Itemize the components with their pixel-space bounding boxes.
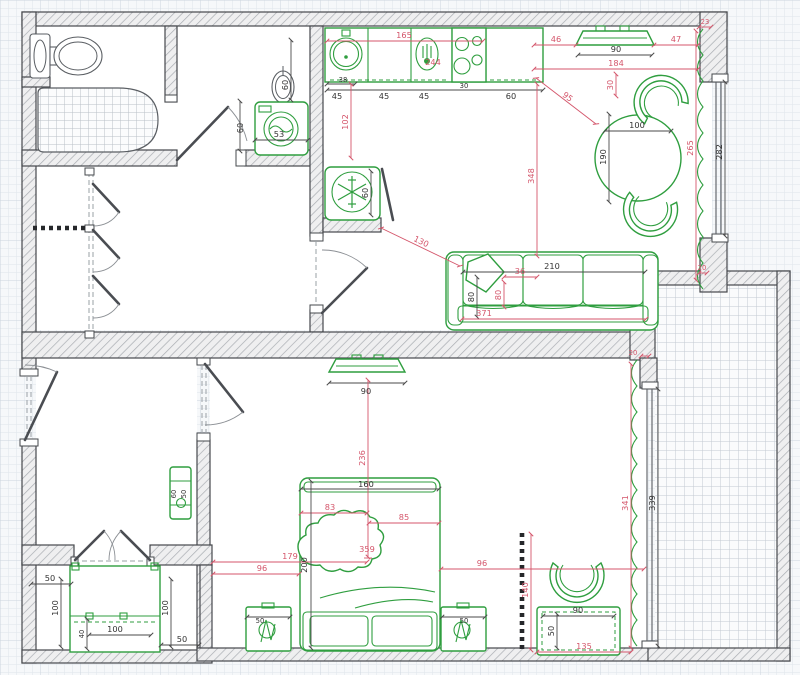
dim-window-bedroom: 339 <box>647 495 657 511</box>
dim-bedtv-width: 90 <box>361 386 371 396</box>
dim-balcony-side-right: 100 <box>160 600 170 616</box>
dim-washer-width: 53 <box>274 129 284 139</box>
dim-pillow-offset: 83 <box>325 502 335 512</box>
dim-desk-to-wall: 135 <box>576 641 592 651</box>
floor-balcony-right-tiles <box>655 285 777 648</box>
kitchen-counter[interactable] <box>325 28 543 82</box>
dim-counter-depth-gap: 102 <box>340 114 350 130</box>
dim-bath-door: 60 <box>235 123 245 133</box>
dim-tv-width: 90 <box>611 44 621 54</box>
dim-curtain-end-gap: 20 <box>698 264 707 272</box>
dim-cabinet-3: 45 <box>419 91 429 101</box>
dim-tv-to-bed: 236 <box>357 450 367 466</box>
dim-sofa-width: 210 <box>544 261 560 271</box>
dim-curtain-bedroom: 341 <box>620 495 630 511</box>
stove-icon[interactable] <box>452 28 486 82</box>
dim-dressing-width: 60 <box>170 490 178 499</box>
dim-mixer: 244 <box>425 57 441 67</box>
dim-nightstand-right: 50 <box>460 617 469 625</box>
dim-sink-offset: 38 <box>339 76 348 84</box>
dim-wardrobe-width: 100 <box>107 624 123 634</box>
dim-dressing-depth: 50 <box>180 490 188 499</box>
dim-center-offset: 359 <box>359 544 375 554</box>
dim-cabinet-1: 45 <box>332 91 342 101</box>
dim-table-zone: 190 <box>598 149 608 165</box>
dim-wall-to-center: 179 <box>282 551 298 561</box>
dim-wardrobe-depth: 40 <box>78 630 86 639</box>
dim-tv-left-gap: 46 <box>551 34 561 44</box>
dim-balcony-left-gap: 50 <box>45 573 55 583</box>
dim-bed-width: 160 <box>358 479 374 489</box>
toilet[interactable] <box>30 34 102 78</box>
dim-counter-total: 165 <box>396 30 412 40</box>
nightstand-left[interactable] <box>246 603 291 651</box>
dim-desk-depth: 50 <box>546 626 556 636</box>
dim-side-offset: 85 <box>399 512 409 522</box>
dim-bed-length: 200 <box>299 557 309 573</box>
dim-tv-right-gap: 47 <box>671 34 681 44</box>
dim-balcony-right-gap: 50 <box>177 634 187 644</box>
bathtub[interactable] <box>38 88 158 152</box>
dim-sofa-cushion: 36 <box>515 266 525 276</box>
floor-plan-drawing: 60 53 60 165 244 38 45 45 45 30 60 102 6… <box>0 0 800 675</box>
dim-stove-width: 30 <box>460 82 469 90</box>
dim-fridge-width: 60 <box>360 188 370 198</box>
dim-window-living: 282 <box>714 144 724 160</box>
dim-counter-to-sofa: 348 <box>526 168 536 184</box>
dim-table-diameter: 100 <box>629 120 645 130</box>
dim-tv-to-table: 30 <box>605 80 615 90</box>
dim-sofa-depth: 80 <box>466 292 476 302</box>
dim-curtain-living: 265 <box>685 140 695 156</box>
dim-washer-offset: 60 <box>280 80 290 90</box>
dim-cabinet-2: 45 <box>379 91 389 101</box>
dim-balcony-side-left: 100 <box>50 600 60 616</box>
dim-right-gap: 96 <box>477 558 487 568</box>
dim-corner-gap: 23 <box>701 18 710 26</box>
dim-left-gap: 96 <box>257 563 267 573</box>
dim-room-width: 184 <box>608 58 624 68</box>
dim-cabinet-4: 60 <box>506 91 516 101</box>
dim-radiator: 140 <box>520 582 530 598</box>
floor-plan-canvas: 60 53 60 165 244 38 45 45 45 30 60 102 6… <box>0 0 800 675</box>
nightstand-right[interactable] <box>441 603 486 651</box>
dim-sofa-total: 371 <box>476 308 492 318</box>
dim-nightstand-left: 50 <box>256 617 265 625</box>
dim-door-gap: 20 <box>629 349 638 357</box>
dim-sofa-depth-inner: 80 <box>493 290 503 300</box>
bed[interactable] <box>298 478 440 651</box>
dim-desk-width: 90 <box>573 605 583 615</box>
